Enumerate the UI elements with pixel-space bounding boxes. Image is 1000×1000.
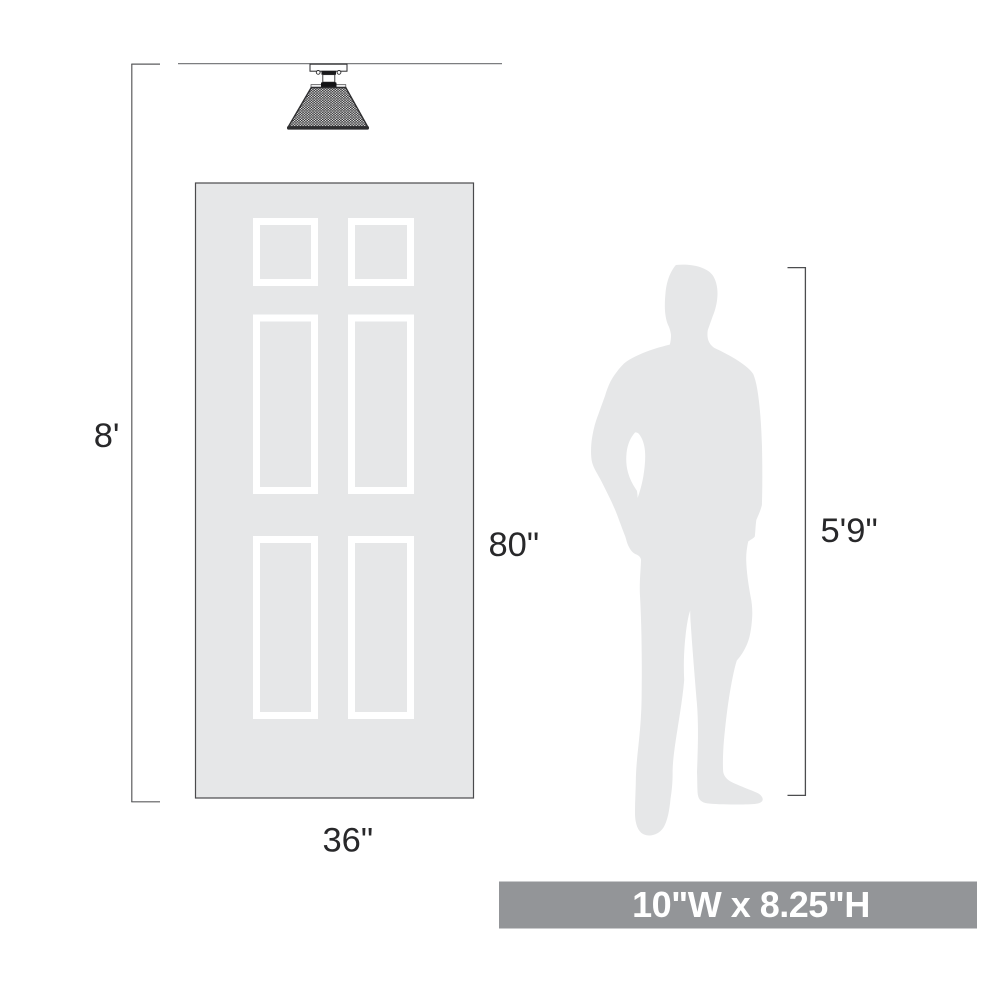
svg-text:10"W x 8.25"H: 10"W x 8.25"H bbox=[632, 884, 870, 925]
svg-text:36": 36" bbox=[323, 822, 374, 860]
svg-text:8': 8' bbox=[94, 417, 120, 455]
svg-text:5'9": 5'9" bbox=[821, 512, 878, 550]
svg-text:80": 80" bbox=[489, 526, 540, 564]
